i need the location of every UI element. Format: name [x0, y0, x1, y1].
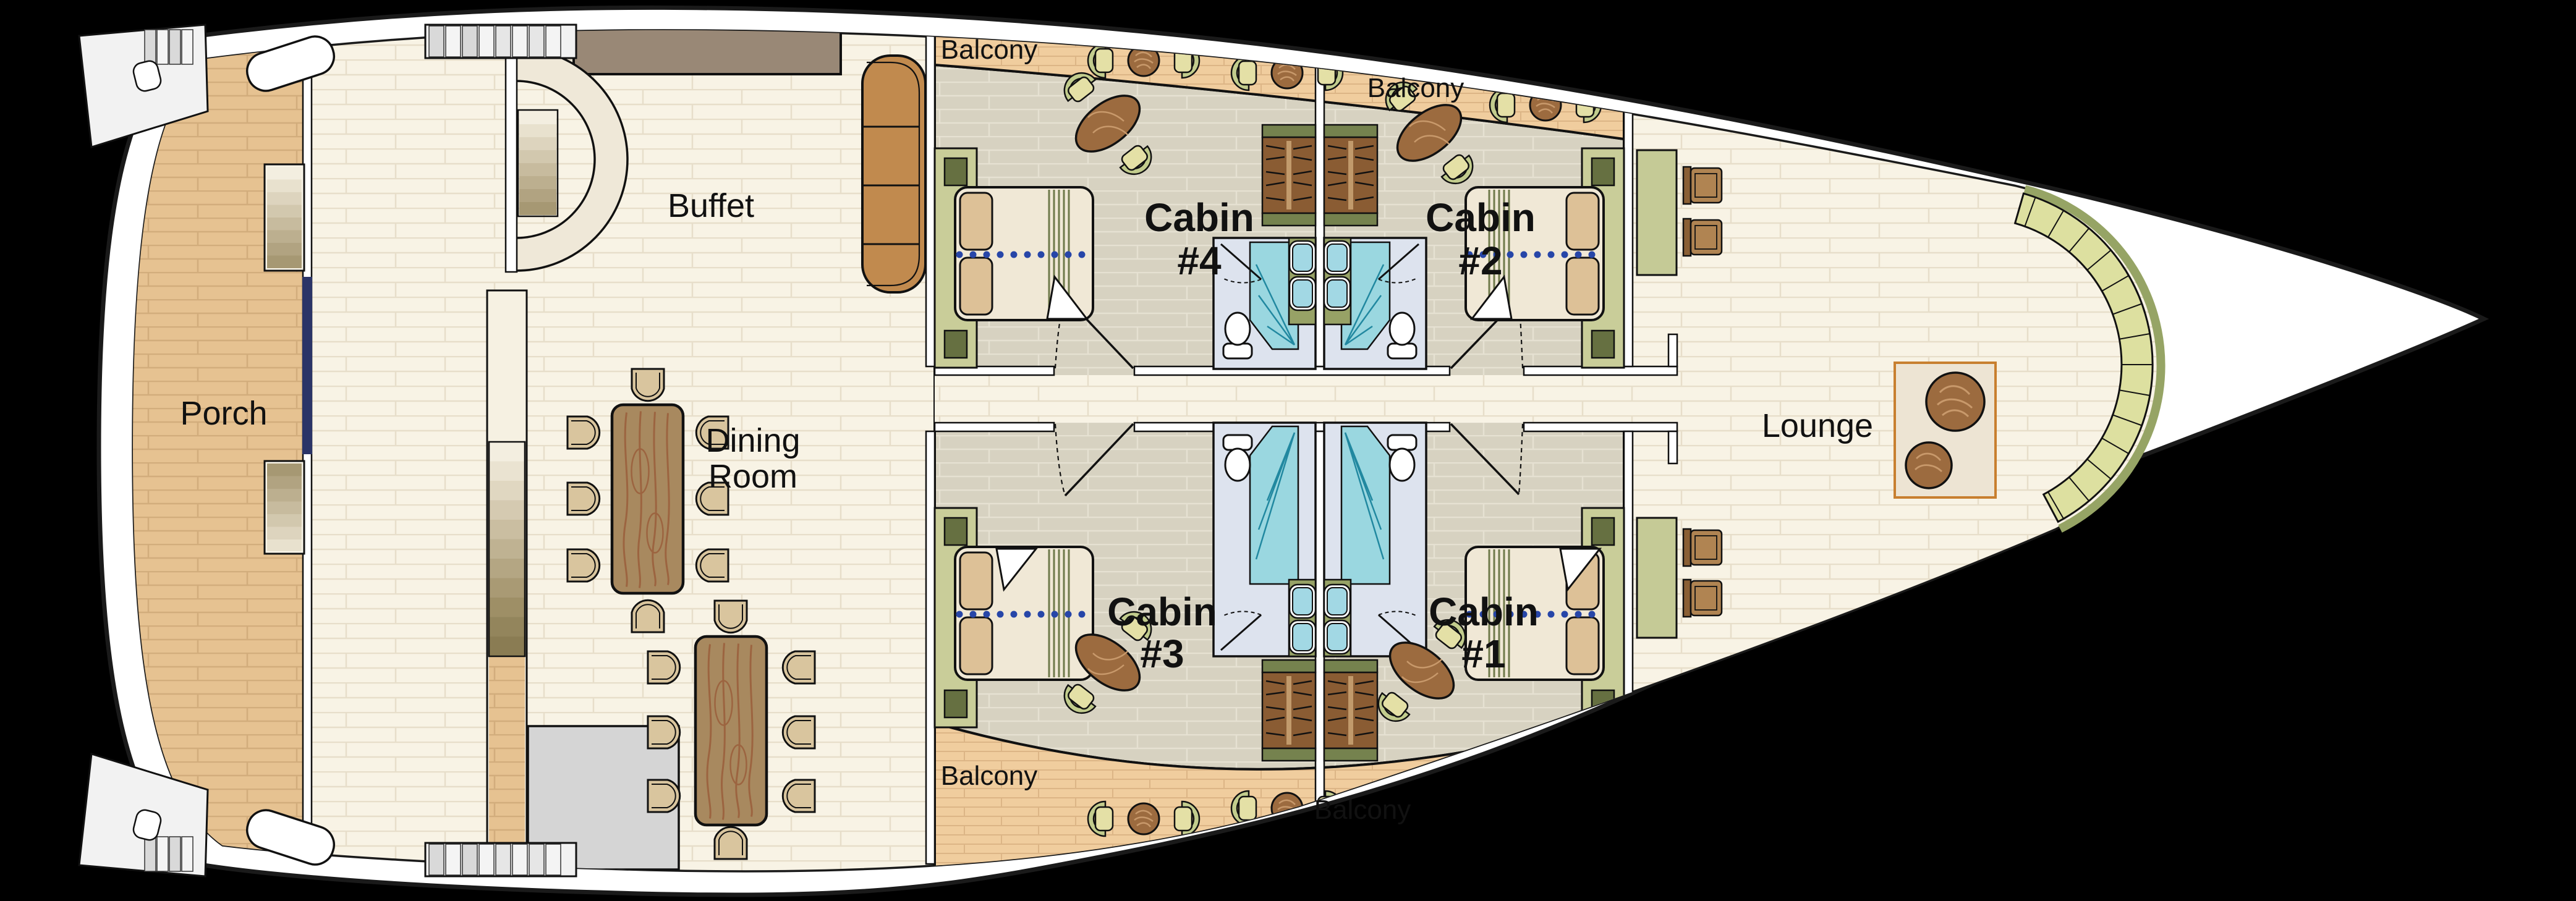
wardrobe: [1262, 660, 1316, 761]
sink: [1324, 585, 1350, 618]
nightstand: [945, 331, 967, 358]
nightstand: [1592, 331, 1614, 358]
label-cabin2-num: #2: [1458, 239, 1502, 283]
nightstand: [945, 690, 967, 717]
boarding-steps-top: [425, 25, 576, 58]
lounge-sideboard-bottom: [1637, 518, 1677, 638]
dining-chair: [783, 651, 815, 683]
dining-chair: [632, 600, 664, 632]
deck-plan-page: Porch Buffet Dining Room Lounge Balcony …: [0, 0, 2576, 901]
dining-chair: [715, 601, 747, 633]
label-lounge: Lounge: [1762, 407, 1873, 444]
sink: [1290, 585, 1316, 618]
nightstand: [945, 518, 967, 545]
sink: [1324, 620, 1350, 654]
label-dining-1: Dining: [705, 422, 800, 459]
balcony-set: [1088, 802, 1199, 836]
label-balcony-bottom-right: Balcony: [1314, 795, 1411, 825]
label-cabin1-word: Cabin: [1429, 590, 1539, 634]
pillow: [1566, 258, 1599, 315]
lounge-armchair: [1683, 529, 1722, 566]
deck-plan-svg: Porch Buffet Dining Room Lounge Balcony …: [0, 0, 2576, 901]
dining-chair: [648, 716, 680, 748]
label-balcony-top-left: Balcony: [941, 35, 1038, 65]
toilet: [1388, 313, 1416, 358]
dining-chair: [783, 780, 815, 812]
label-cabin2-word: Cabin: [1426, 195, 1536, 240]
boarding-steps-bottom: [425, 843, 576, 876]
label-dining-2: Room: [708, 458, 797, 495]
lounge-armchair: [1683, 580, 1722, 617]
label-cabin4-word: Cabin: [1144, 195, 1254, 240]
lounge-rug: [1895, 363, 1996, 497]
arc-stairs: [518, 110, 558, 216]
sink: [1290, 620, 1316, 654]
dining-chair: [567, 483, 600, 515]
lounge-table: [1926, 373, 1984, 431]
label-cabin4-num: #4: [1177, 239, 1222, 283]
dining-chair: [567, 549, 600, 582]
sink: [1290, 241, 1316, 274]
pillow: [960, 552, 992, 609]
label-porch: Porch: [180, 395, 267, 432]
navy-wall-segment: [302, 277, 312, 454]
dining-chair: [648, 780, 680, 812]
pillow: [1566, 193, 1599, 250]
lounge-table: [1906, 442, 1952, 488]
dining-chair: [696, 549, 728, 582]
pillow: [1566, 617, 1599, 674]
corridor-floor: [935, 375, 1677, 423]
dining-table-1: [612, 405, 683, 593]
label-cabin1-num: #1: [1461, 632, 1505, 676]
dining-chair: [648, 651, 680, 683]
dining-table-2: [695, 637, 767, 825]
lower-stair-shaft: [487, 290, 527, 860]
porch-stairs-lower: [265, 461, 304, 554]
toilet: [1388, 435, 1416, 481]
wardrobe: [1262, 125, 1316, 226]
label-cabin3-word: Cabin: [1107, 590, 1217, 634]
lounge-armchair: [1683, 167, 1722, 204]
label-buffet: Buffet: [668, 187, 754, 224]
sink: [1290, 277, 1316, 310]
toilet: [1223, 435, 1252, 481]
serving-counter: [862, 56, 925, 292]
wardrobe: [1324, 125, 1377, 226]
sink: [1324, 277, 1350, 310]
lounge-armchair: [1683, 219, 1722, 256]
label-balcony-top-right: Balcony: [1367, 73, 1464, 103]
label-balcony-bottom-left: Balcony: [941, 761, 1038, 791]
nightstand: [1592, 518, 1614, 545]
nightstand: [945, 158, 967, 185]
pillow: [960, 617, 992, 674]
lounge-sideboard-top: [1637, 150, 1677, 275]
stairs-down: [489, 442, 525, 656]
nightstand: [1592, 158, 1614, 185]
pillow: [960, 193, 992, 250]
dining-chair: [783, 716, 815, 748]
sink: [1324, 241, 1350, 274]
pillow: [960, 258, 992, 315]
wardrobe: [1324, 660, 1377, 761]
label-cabin3-num: #3: [1140, 632, 1184, 676]
dining-chair: [715, 827, 747, 859]
dining-chair: [632, 369, 664, 401]
porch-stairs-upper: [265, 164, 304, 271]
toilet: [1223, 313, 1252, 358]
dining-chair: [567, 417, 600, 449]
